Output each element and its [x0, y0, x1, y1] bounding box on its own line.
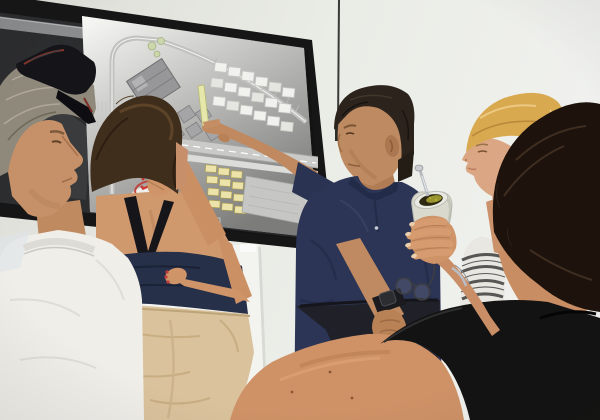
vignette	[0, 0, 600, 420]
photo-meeting-room: ETB	[0, 0, 600, 420]
